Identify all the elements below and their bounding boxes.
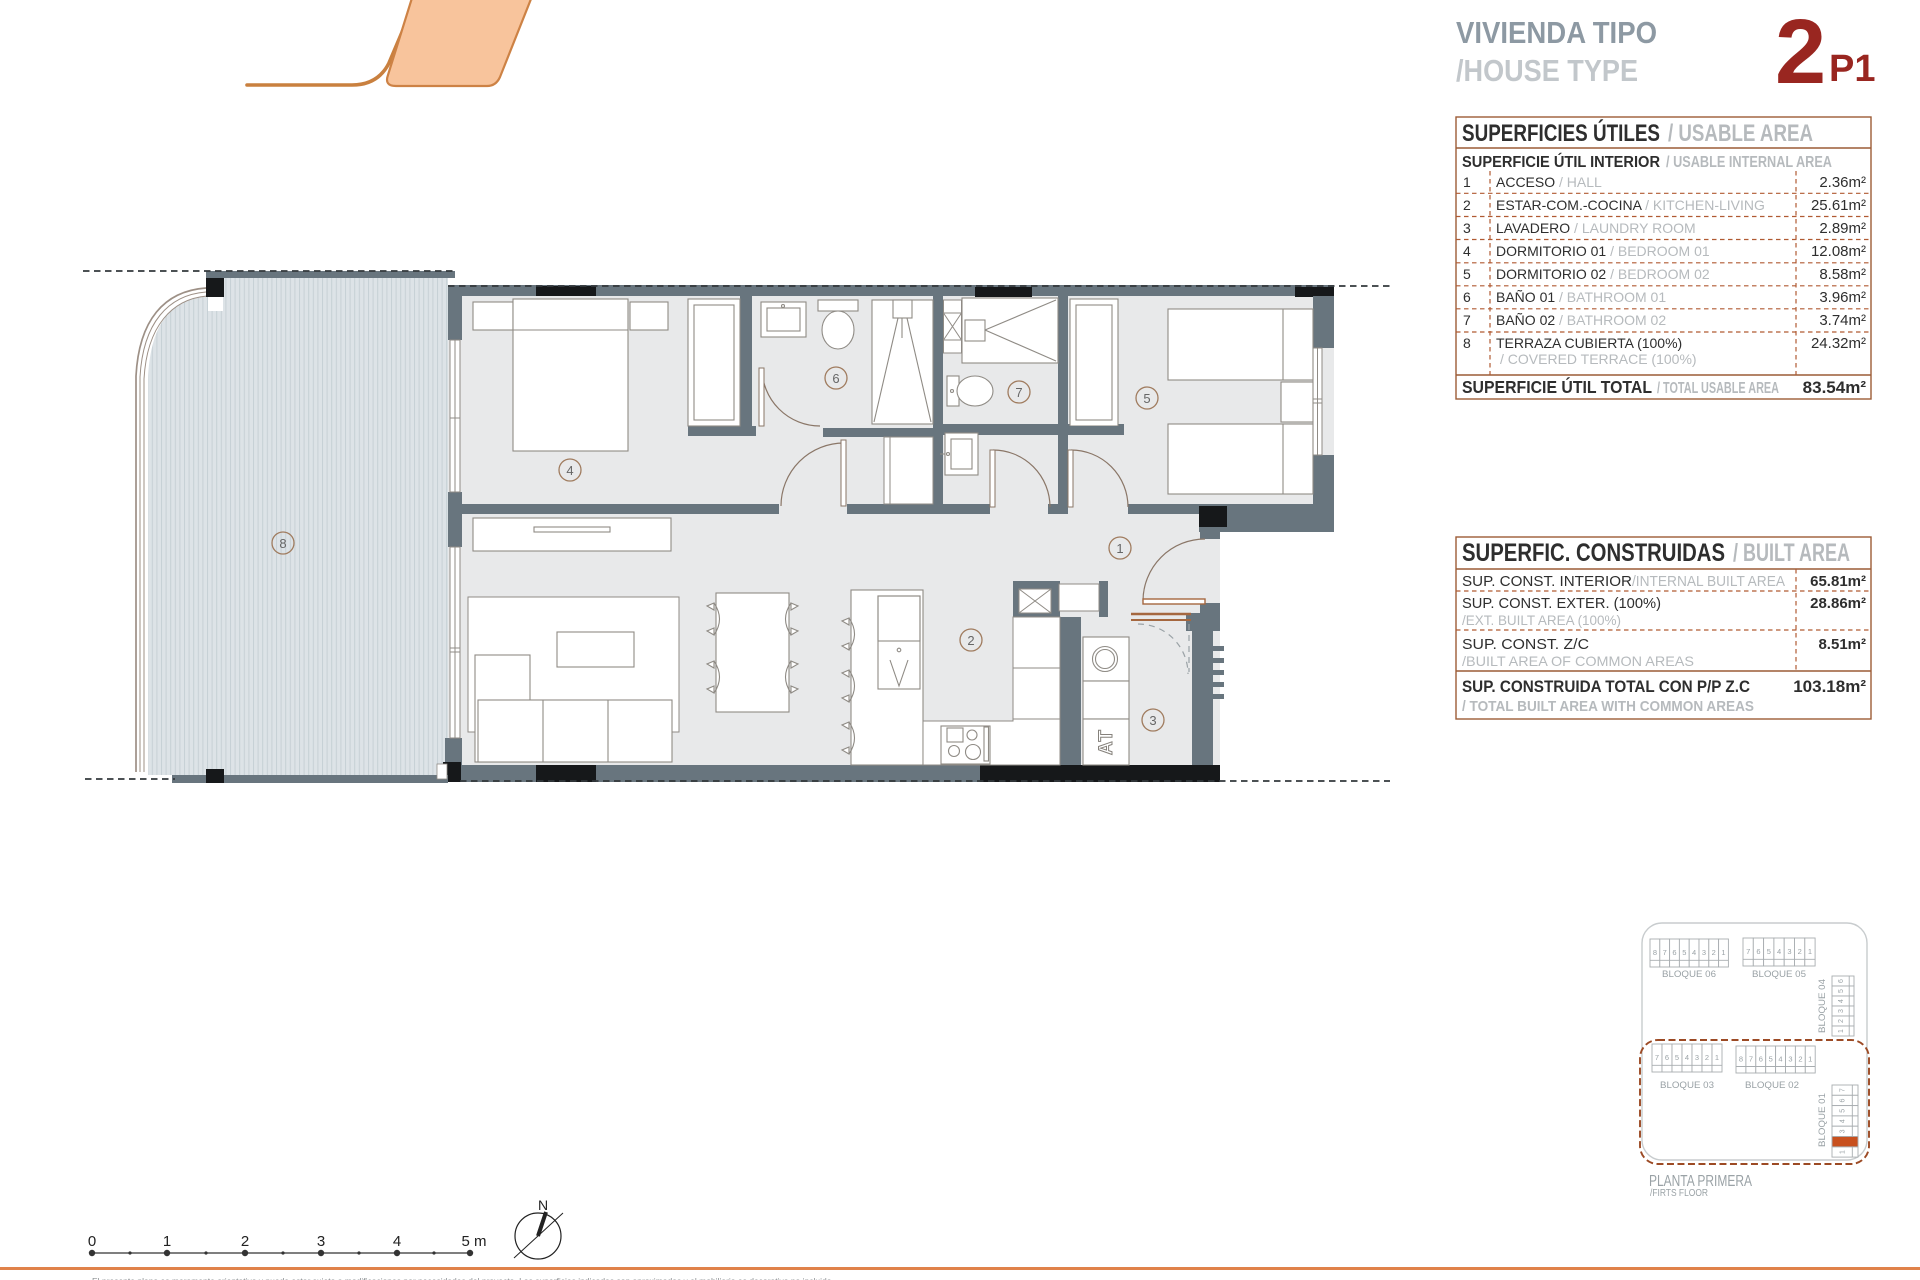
svg-text:2.36m²: 2.36m²: [1819, 174, 1866, 191]
svg-text:7: 7: [1663, 948, 1667, 957]
svg-text:El presente plano es meramente: El presente plano es meramente orientati…: [92, 1276, 834, 1280]
svg-text:4: 4: [1463, 243, 1471, 259]
svg-text:5: 5: [1143, 391, 1150, 406]
svg-text:4: 4: [393, 1233, 401, 1250]
svg-text:SUP. CONST. EXTER. (100%): SUP. CONST. EXTER. (100%): [1462, 595, 1661, 612]
svg-text:BLOQUE 03: BLOQUE 03: [1660, 1080, 1714, 1091]
svg-text:8: 8: [1463, 335, 1471, 351]
svg-text:SUP. CONST. Z/C: SUP. CONST. Z/C: [1462, 636, 1589, 653]
svg-text:3: 3: [1463, 220, 1471, 236]
svg-text:/INTERNAL BUILT AREA: /INTERNAL BUILT AREA: [1632, 573, 1785, 590]
svg-text:4: 4: [1692, 948, 1696, 957]
svg-text:5: 5: [1675, 1053, 1679, 1062]
svg-text:1: 1: [1116, 541, 1123, 556]
svg-text:/HOUSE TYPE: /HOUSE TYPE: [1456, 53, 1638, 88]
svg-text:5: 5: [1769, 1055, 1773, 1064]
svg-text:3: 3: [1839, 1129, 1846, 1133]
svg-text:SUP. CONSTRUIDA TOTAL CON P/P: SUP. CONSTRUIDA TOTAL CON P/P Z.C: [1462, 677, 1750, 696]
svg-text:2: 2: [1712, 948, 1716, 957]
svg-text:7: 7: [1463, 312, 1471, 328]
svg-text:1: 1: [1839, 1150, 1846, 1154]
svg-text:/ USABLE INTERNAL AREA: / USABLE INTERNAL AREA: [1666, 154, 1832, 171]
svg-text:1: 1: [1838, 1029, 1845, 1033]
svg-text:3: 3: [1787, 947, 1791, 956]
svg-text:SUPERFIC. CONSTRUIDAS: SUPERFIC. CONSTRUIDAS: [1462, 539, 1725, 567]
svg-text:7: 7: [1839, 1088, 1846, 1092]
svg-text:7: 7: [1015, 385, 1022, 400]
svg-text:/BUILT AREA OF COMMON AREAS: /BUILT AREA OF COMMON AREAS: [1462, 653, 1694, 669]
svg-text:5: 5: [1463, 266, 1471, 282]
svg-text:2.89m²: 2.89m²: [1819, 220, 1866, 237]
svg-text:/EXT. BUILT AREA (100%): /EXT. BUILT AREA (100%): [1462, 612, 1621, 628]
svg-text:/ COVERED TERRACE (100%): / COVERED TERRACE (100%): [1500, 351, 1697, 367]
svg-text:BLOQUE 01: BLOQUE 01: [1817, 1093, 1828, 1147]
svg-text:DORMITORIO 01 / BEDROOM 01: DORMITORIO 01 / BEDROOM 01: [1496, 243, 1710, 259]
svg-text:P1: P1: [1829, 48, 1875, 90]
svg-text:5: 5: [1839, 1109, 1846, 1113]
svg-text:1: 1: [1808, 1055, 1812, 1064]
svg-text:7: 7: [1749, 1055, 1753, 1064]
svg-text:2: 2: [1798, 1055, 1802, 1064]
svg-text:4: 4: [1778, 1055, 1782, 1064]
svg-text:/FIRTS FLOOR: /FIRTS FLOOR: [1650, 1188, 1708, 1199]
svg-text:8.51m²: 8.51m²: [1818, 636, 1866, 653]
svg-text:6: 6: [1756, 947, 1760, 956]
svg-text:BLOQUE 04: BLOQUE 04: [1817, 979, 1828, 1033]
svg-text:6: 6: [1759, 1055, 1763, 1064]
svg-text:6: 6: [1838, 979, 1845, 983]
svg-text:5: 5: [1767, 947, 1771, 956]
svg-text:2: 2: [1838, 1019, 1845, 1023]
svg-text:7: 7: [1746, 947, 1750, 956]
svg-text:3: 3: [1149, 713, 1156, 728]
svg-text:3: 3: [1788, 1055, 1792, 1064]
svg-text:3: 3: [1702, 948, 1706, 957]
svg-text:/ TOTAL USABLE AREA: / TOTAL USABLE AREA: [1657, 380, 1779, 397]
svg-text:4: 4: [1685, 1053, 1689, 1062]
svg-text:6: 6: [1839, 1098, 1846, 1102]
svg-text:2: 2: [1775, 1, 1826, 103]
svg-text:AT: AT: [1096, 729, 1117, 755]
svg-text:2: 2: [967, 633, 974, 648]
svg-text:/ BUILT AREA: / BUILT AREA: [1733, 539, 1850, 567]
svg-text:1: 1: [1808, 947, 1812, 956]
svg-text:LAVADERO / LAUNDRY ROOM: LAVADERO / LAUNDRY ROOM: [1496, 220, 1696, 236]
svg-text:BAÑO 02 / BATHROOM 02: BAÑO 02 / BATHROOM 02: [1496, 312, 1666, 328]
svg-text:5 m: 5 m: [461, 1233, 486, 1250]
svg-text:25.61m²: 25.61m²: [1811, 197, 1866, 214]
svg-text:N: N: [538, 1197, 548, 1213]
svg-text:2: 2: [241, 1233, 249, 1250]
svg-text:SUPERFICIE ÚTIL INTERIOR: SUPERFICIE ÚTIL INTERIOR: [1462, 152, 1660, 171]
svg-text:6: 6: [1463, 289, 1471, 305]
svg-text:0: 0: [88, 1233, 96, 1250]
svg-text:2: 2: [1705, 1053, 1709, 1062]
svg-text:4: 4: [1777, 947, 1781, 956]
svg-text:28.86m²: 28.86m²: [1810, 595, 1866, 612]
svg-text:83.54m²: 83.54m²: [1803, 378, 1867, 397]
svg-text:4: 4: [1839, 1119, 1846, 1123]
svg-text:2: 2: [1463, 197, 1471, 213]
svg-text:1: 1: [1721, 948, 1725, 957]
svg-text:6: 6: [832, 371, 839, 386]
svg-text:3.74m²: 3.74m²: [1819, 312, 1866, 329]
svg-text:1: 1: [163, 1233, 171, 1250]
svg-text:4: 4: [566, 463, 573, 478]
svg-text:/ TOTAL BUILT AREA WITH COMMON: / TOTAL BUILT AREA WITH COMMON AREAS: [1462, 698, 1754, 715]
svg-text:ACCESO / HALL: ACCESO / HALL: [1496, 174, 1602, 190]
svg-text:3.96m²: 3.96m²: [1819, 289, 1866, 306]
svg-text:SUPERFICIES ÚTILES: SUPERFICIES ÚTILES: [1462, 119, 1660, 147]
svg-text:6: 6: [1672, 948, 1676, 957]
svg-text:12.08m²: 12.08m²: [1811, 243, 1866, 260]
svg-text:24.32m²: 24.32m²: [1811, 335, 1866, 352]
svg-text:ESTAR-COM.-COCINA / KITCHEN-LI: ESTAR-COM.-COCINA / KITCHEN-LIVING: [1496, 197, 1765, 213]
svg-text:SUPERFICIE ÚTIL TOTAL: SUPERFICIE ÚTIL TOTAL: [1462, 376, 1652, 397]
svg-text:2: 2: [1798, 947, 1802, 956]
svg-text:7: 7: [1655, 1053, 1659, 1062]
svg-text:8: 8: [279, 536, 286, 551]
svg-text:/ USABLE AREA: / USABLE AREA: [1668, 120, 1813, 147]
svg-text:65.81m²: 65.81m²: [1810, 573, 1866, 590]
svg-text:8: 8: [1653, 948, 1657, 957]
svg-text:BLOQUE 05: BLOQUE 05: [1752, 969, 1806, 980]
svg-text:103.18m²: 103.18m²: [1793, 677, 1866, 696]
svg-text:5: 5: [1682, 948, 1686, 957]
svg-text:4: 4: [1838, 999, 1845, 1003]
svg-text:VIVIENDA TIPO: VIVIENDA TIPO: [1456, 15, 1657, 50]
svg-text:5: 5: [1838, 989, 1845, 993]
svg-text:BLOQUE 06: BLOQUE 06: [1662, 969, 1716, 980]
svg-text:BLOQUE 02: BLOQUE 02: [1745, 1080, 1799, 1091]
svg-text:TERRAZA CUBIERTA (100%): TERRAZA CUBIERTA (100%): [1496, 335, 1682, 351]
svg-text:DORMITORIO 02 / BEDROOM 02: DORMITORIO 02 / BEDROOM 02: [1496, 266, 1710, 282]
svg-text:3: 3: [1695, 1053, 1699, 1062]
svg-text:SUP. CONST. INTERIOR: SUP. CONST. INTERIOR: [1462, 573, 1632, 590]
svg-text:8.58m²: 8.58m²: [1819, 266, 1866, 283]
svg-text:3: 3: [317, 1233, 325, 1250]
svg-text:8: 8: [1739, 1055, 1743, 1064]
svg-text:BAÑO 01 / BATHROOM 01: BAÑO 01 / BATHROOM 01: [1496, 289, 1666, 305]
svg-text:1: 1: [1463, 174, 1471, 190]
svg-text:3: 3: [1838, 1009, 1845, 1013]
svg-text:6: 6: [1665, 1053, 1669, 1062]
svg-text:1: 1: [1715, 1053, 1719, 1062]
